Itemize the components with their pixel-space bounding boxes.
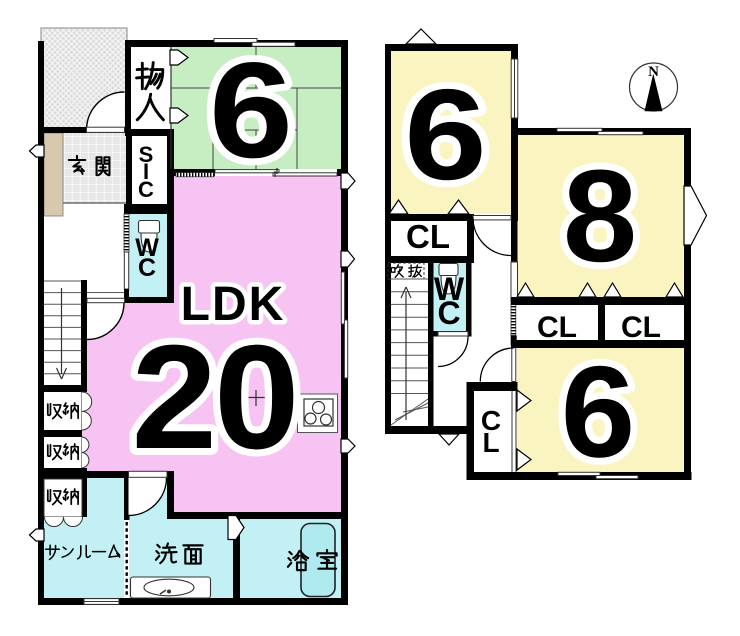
svg-text:C: C [138, 254, 156, 282]
svg-text:CL: CL [537, 311, 577, 344]
svg-text:L: L [482, 427, 499, 458]
svg-text:6: 6 [404, 63, 487, 207]
svg-text:C: C [138, 177, 154, 202]
svg-text:N: N [648, 64, 659, 80]
svg-text:CL: CL [406, 218, 450, 255]
svg-text:6: 6 [561, 339, 635, 484]
svg-text:6: 6 [209, 35, 293, 186]
svg-text:C: C [437, 295, 460, 331]
svg-text:8: 8 [563, 143, 637, 290]
svg-text:20: 20 [132, 314, 297, 480]
svg-text:CL: CL [621, 311, 661, 344]
